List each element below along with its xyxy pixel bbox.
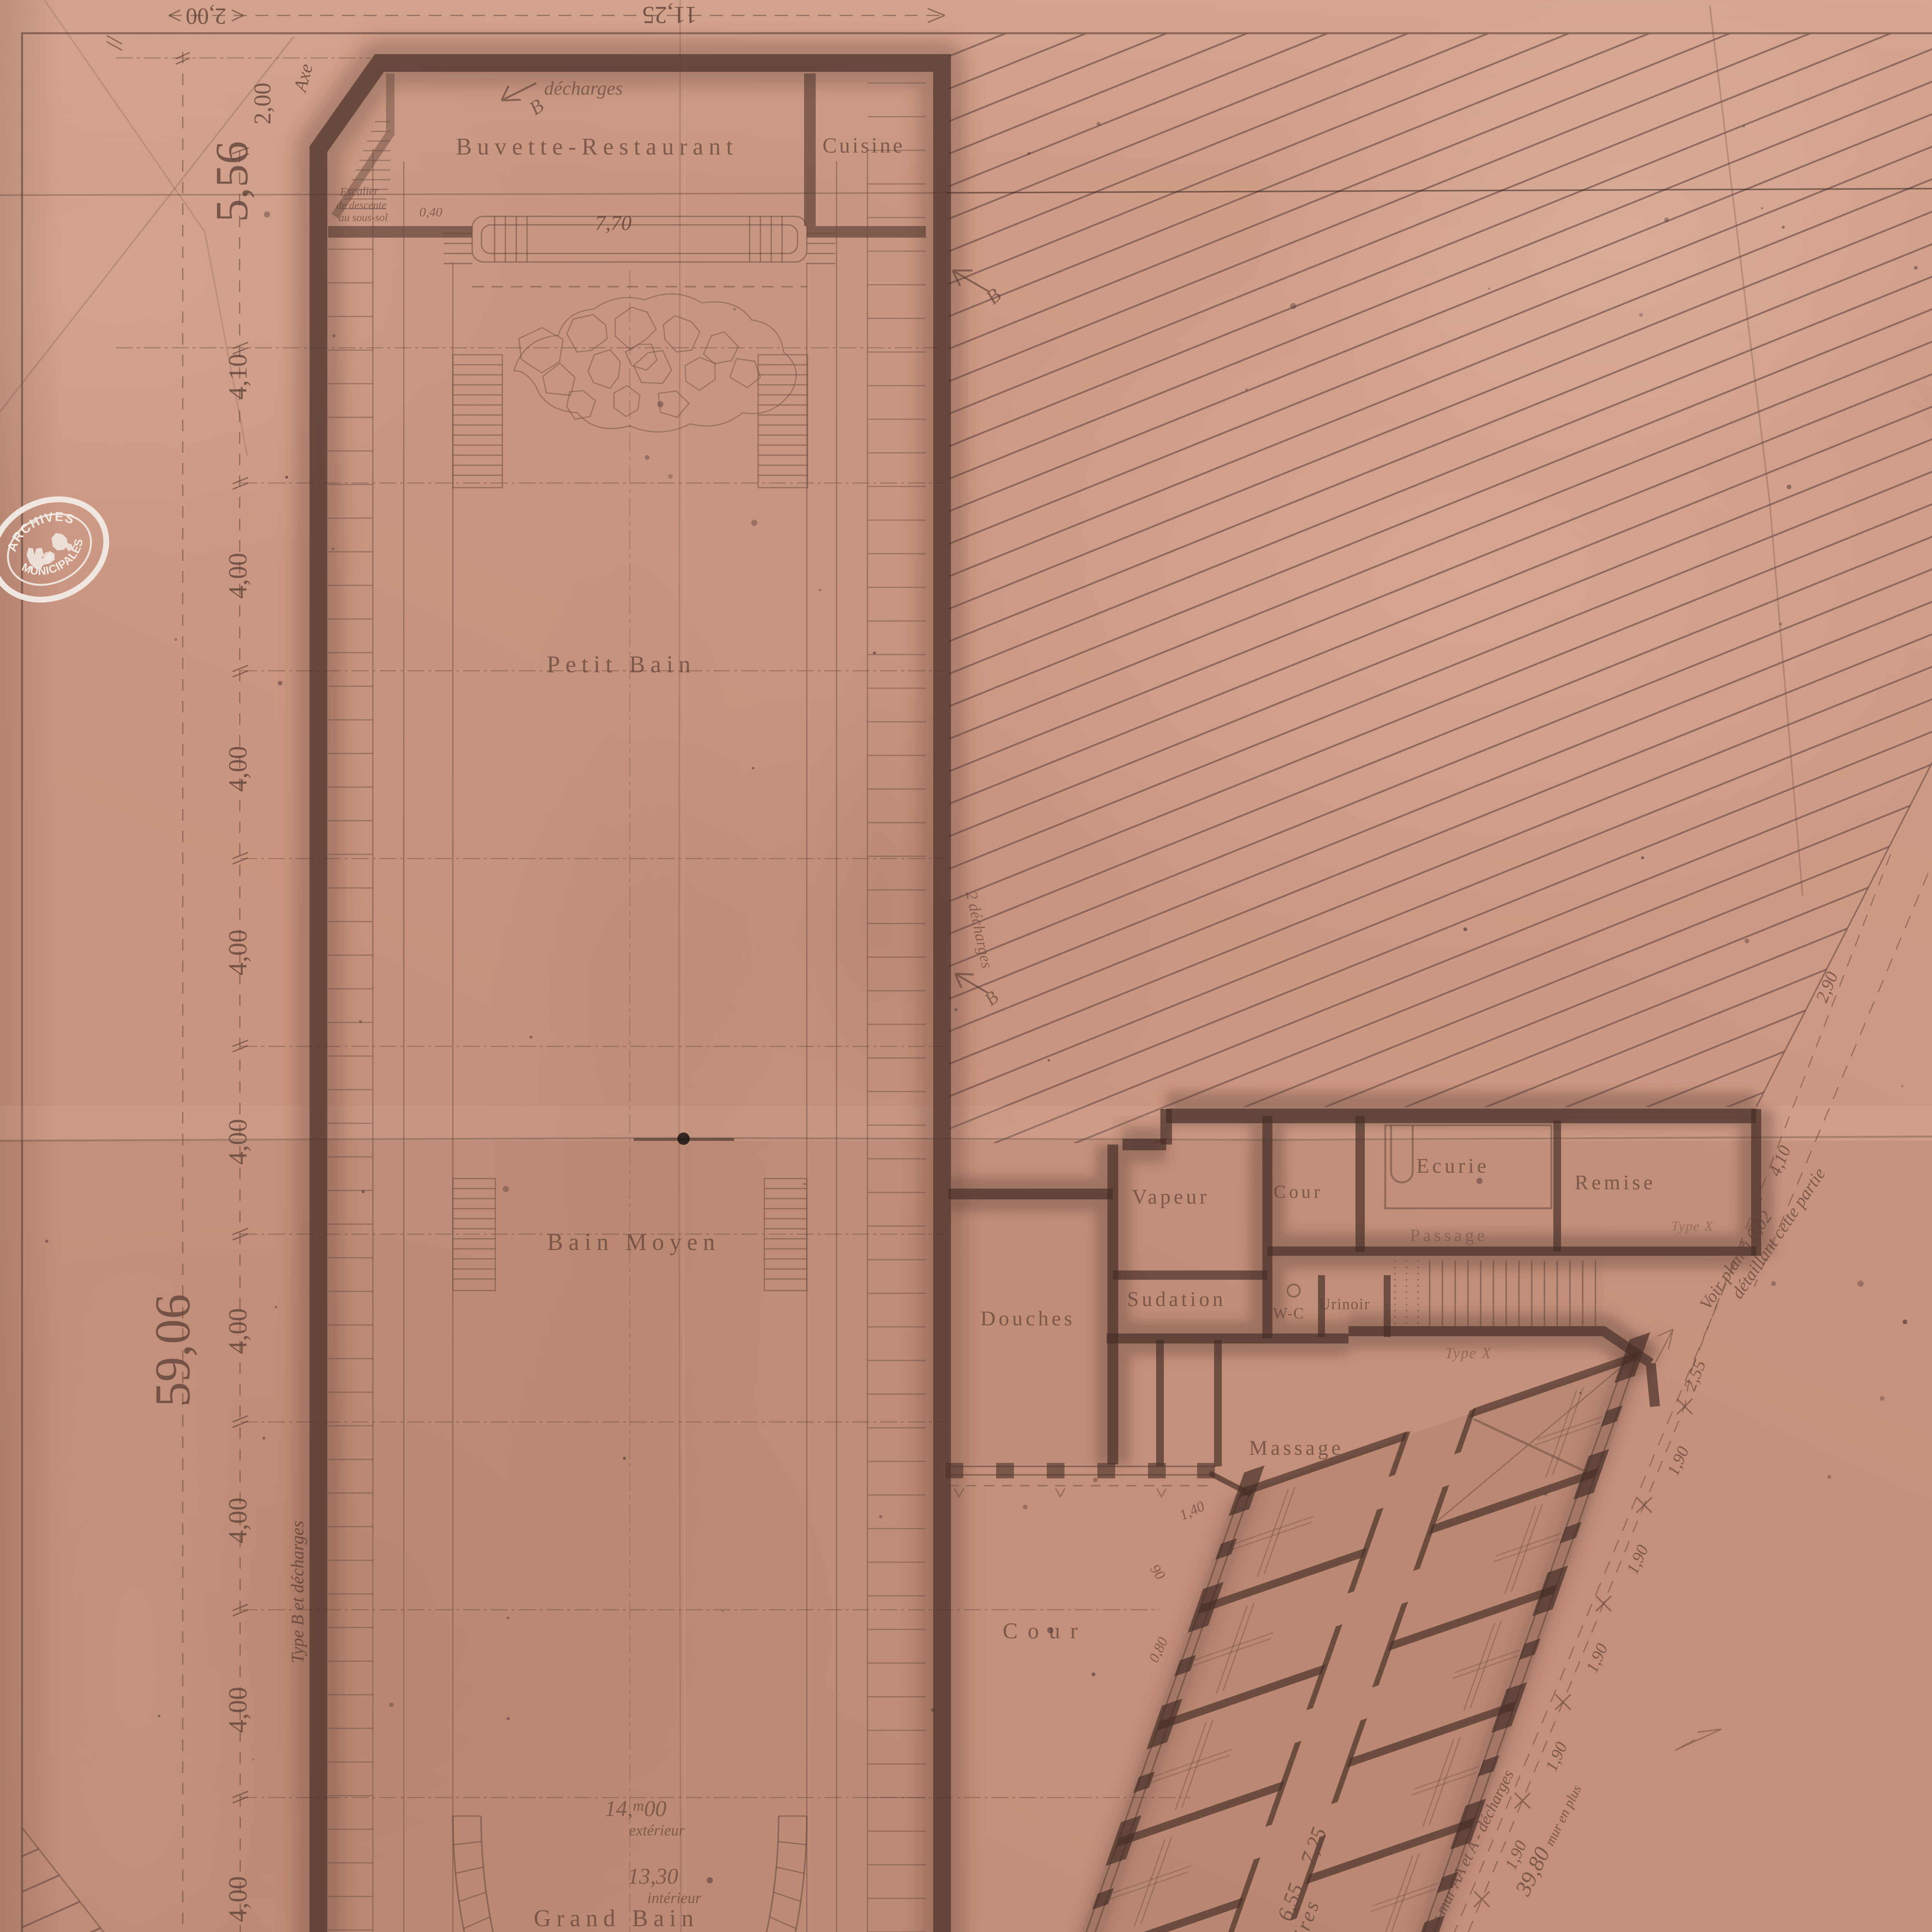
svg-text:4,00: 4,00 — [223, 553, 252, 599]
svg-text:Type X: Type X — [1671, 1218, 1714, 1234]
svg-text:W-C: W-C — [1273, 1304, 1304, 1322]
svg-text:4,10: 4,10 — [223, 354, 252, 400]
svg-text:2,00: 2,00 — [186, 3, 226, 29]
svg-text:4,00: 4,00 — [223, 930, 252, 976]
svg-text:Grand Bain: Grand Bain — [534, 1905, 699, 1932]
svg-text:intérieur: intérieur — [647, 1889, 701, 1906]
svg-text:extérieur: extérieur — [629, 1821, 685, 1839]
svg-text:Remise: Remise — [1575, 1171, 1656, 1194]
svg-text:Passage: Passage — [1410, 1225, 1488, 1245]
svg-text:Cuisine: Cuisine — [822, 134, 905, 158]
svg-text:4,00: 4,00 — [223, 1119, 252, 1165]
svg-text:4,00: 4,00 — [223, 1876, 252, 1922]
svg-text:Type X: Type X — [1445, 1344, 1492, 1362]
svg-text:4,00: 4,00 — [223, 1687, 252, 1733]
svg-text:au sous-sol: au sous-sol — [339, 212, 388, 224]
svg-text:4,00: 4,00 — [223, 1308, 252, 1354]
svg-text:7,70: 7,70 — [595, 211, 632, 235]
svg-text:décharges: décharges — [544, 77, 623, 99]
svg-text:59,06: 59,06 — [145, 1294, 201, 1407]
svg-text:4,00: 4,00 — [223, 1498, 252, 1544]
svg-text:Ecurie: Ecurie — [1417, 1154, 1490, 1177]
svg-text:Urinoir: Urinoir — [1319, 1295, 1370, 1313]
svg-text:Cour: Cour — [1274, 1182, 1323, 1202]
svg-text:Sudation: Sudation — [1127, 1287, 1226, 1311]
svg-text:0,40: 0,40 — [419, 205, 442, 219]
svg-text:2,00: 2,00 — [250, 83, 276, 125]
svg-text:Massage: Massage — [1249, 1436, 1344, 1459]
svg-text:11,25: 11,25 — [642, 2, 697, 29]
svg-text:Petit Bain: Petit Bain — [547, 651, 696, 678]
svg-text:Buvette-Restaurant: Buvette-Restaurant — [456, 134, 738, 160]
svg-text:Douches: Douches — [981, 1307, 1075, 1330]
svg-text:Axe: Axe — [289, 61, 317, 95]
svg-text:13,30: 13,30 — [628, 1864, 679, 1889]
svg-text:Bain Moyen: Bain Moyen — [547, 1229, 720, 1255]
svg-text:Cour: Cour — [1003, 1618, 1088, 1643]
svg-text:Escalier: Escalier — [339, 184, 379, 199]
svg-text:de descente: de descente — [336, 199, 386, 211]
svg-text:Vapeur: Vapeur — [1132, 1185, 1210, 1208]
svg-text:4,00: 4,00 — [223, 746, 252, 792]
